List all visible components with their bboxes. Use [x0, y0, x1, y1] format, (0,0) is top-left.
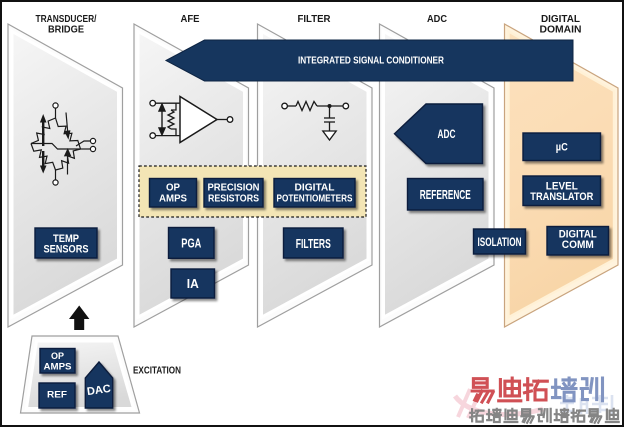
svg-text:OP: OP — [51, 351, 64, 361]
svg-text:INTEGRATED SIGNAL CONDITIONER: INTEGRATED SIGNAL CONDITIONER — [298, 56, 445, 67]
svg-text:RESISTORS: RESISTORS — [208, 192, 259, 204]
svg-text:POTENTIOMETERS: POTENTIOMETERS — [277, 192, 353, 204]
svg-text:AMPS: AMPS — [159, 192, 187, 204]
svg-text:REF: REF — [47, 389, 68, 399]
svg-text:COMM: COMM — [562, 239, 594, 251]
svg-text:DOMAIN: DOMAIN — [540, 25, 582, 36]
svg-text:AMPS: AMPS — [44, 362, 72, 372]
svg-text:ADC: ADC — [438, 127, 456, 141]
svg-text:SENSORS: SENSORS — [44, 243, 89, 255]
svg-text:FILTERS: FILTERS — [296, 236, 331, 251]
svg-text:µC: µC — [556, 142, 568, 154]
svg-text:REFERENCE: REFERENCE — [420, 187, 471, 202]
svg-text:BRIDGE: BRIDGE — [48, 25, 84, 36]
svg-text:TRANSLATOR: TRANSLATOR — [530, 191, 593, 203]
svg-text:ADC: ADC — [427, 14, 447, 25]
svg-text:DIGITAL: DIGITAL — [541, 14, 580, 25]
svg-text:EXCITATION: EXCITATION — [133, 366, 181, 377]
svg-text:PGA: PGA — [181, 236, 201, 251]
svg-text:FILTER: FILTER — [298, 14, 332, 25]
svg-text:TRANSDUCER/: TRANSDUCER/ — [36, 14, 97, 25]
svg-text:IA: IA — [187, 276, 200, 291]
svg-text:ISOLATION: ISOLATION — [478, 235, 522, 249]
svg-text:AFE: AFE — [181, 14, 200, 25]
